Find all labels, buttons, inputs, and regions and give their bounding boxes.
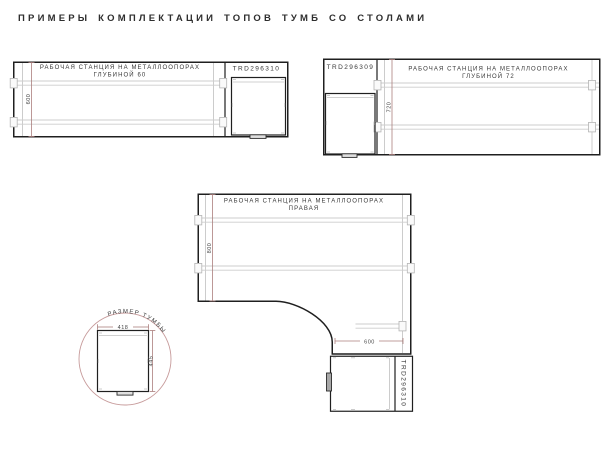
rail-clamp: [10, 117, 17, 127]
desk60-title-line2: ГЛУБИНОЙ 60: [94, 71, 147, 79]
corner-desk-title-line1: РАБОЧАЯ СТАНЦИЯ НА МЕТАЛЛООПОРАХ: [224, 199, 384, 205]
rail-clamp: [374, 80, 381, 90]
cabinet-detail-ticks: [333, 358, 389, 410]
rail-clamp: [407, 263, 414, 273]
corner-desk-title-line2: ПРАВАЯ: [289, 206, 320, 212]
dim-label-depth: 600: [26, 94, 32, 105]
rail-clamp: [220, 117, 227, 127]
cabinet-top-view: TRD296310: [327, 356, 413, 411]
rail-clamp: [407, 215, 414, 225]
dimension-height-445: 445: [148, 331, 155, 392]
product-code: TRD296310: [233, 66, 281, 73]
diagram-cabinet-size: РАЗМЕР ТУМБЫ 418 445: [72, 306, 184, 416]
dim-label-height: 445: [148, 356, 154, 367]
rail-clamp: [10, 78, 17, 88]
cabinet-handle: [327, 373, 332, 391]
product-code: TRD296309: [327, 64, 375, 71]
desk72-title-line2: ГЛУБИНОЙ 72: [462, 72, 515, 80]
cabinet-top-view: [98, 331, 149, 396]
dim-label-width: 600: [364, 339, 375, 345]
drawing-canvas: ПРИМЕРЫ КОМПЛЕКТАЦИИ ТОПОВ ТУМБ СО СТОЛА…: [0, 0, 608, 456]
dim-label-depth: 800: [207, 243, 213, 254]
rail-clamp: [220, 78, 227, 88]
rail-clamp: [399, 321, 406, 331]
cabinet-outline: [98, 331, 149, 392]
desk72-title-line1: РАБОЧАЯ СТАНЦИЯ НА МЕТАЛЛООПОРАХ: [408, 67, 568, 73]
cabinet-handle: [117, 392, 133, 396]
rail-clamp: [589, 80, 596, 90]
rail-clamp: [195, 263, 202, 273]
dim-label-depth: 720: [387, 102, 393, 113]
desk60-title-line1: РАБОЧАЯ СТАНЦИЯ НА МЕТАЛЛООПОРАХ: [40, 65, 200, 71]
diagram-desk-72: 720 TRD296309 РАБОЧАЯ СТАНЦИЯ НА МЕТАЛЛО…: [321, 54, 605, 166]
diagram-desk-corner: 800 600 РАБОЧАЯ СТАНЦИЯ НА МЕТАЛЛООПОРАХ…: [196, 192, 420, 422]
diagram-desk-60: 600 РАБОЧАЯ СТАНЦИЯ НА МЕТАЛЛООПОРАХ ГЛУ…: [13, 57, 291, 145]
page-title: ПРИМЕРЫ КОМПЛЕКТАЦИИ ТОПОВ ТУМБ СО СТОЛА…: [18, 13, 427, 24]
rail-clamp: [195, 215, 202, 225]
cabinet-handle: [342, 154, 357, 158]
cabinet-detail-ticks: [98, 333, 147, 389]
dim-label-width: 418: [118, 325, 129, 331]
desk60-outline: [14, 62, 288, 137]
rail-clamp: [589, 122, 596, 131]
product-code: TRD296310: [400, 360, 407, 408]
cabinet-handle: [250, 135, 266, 139]
